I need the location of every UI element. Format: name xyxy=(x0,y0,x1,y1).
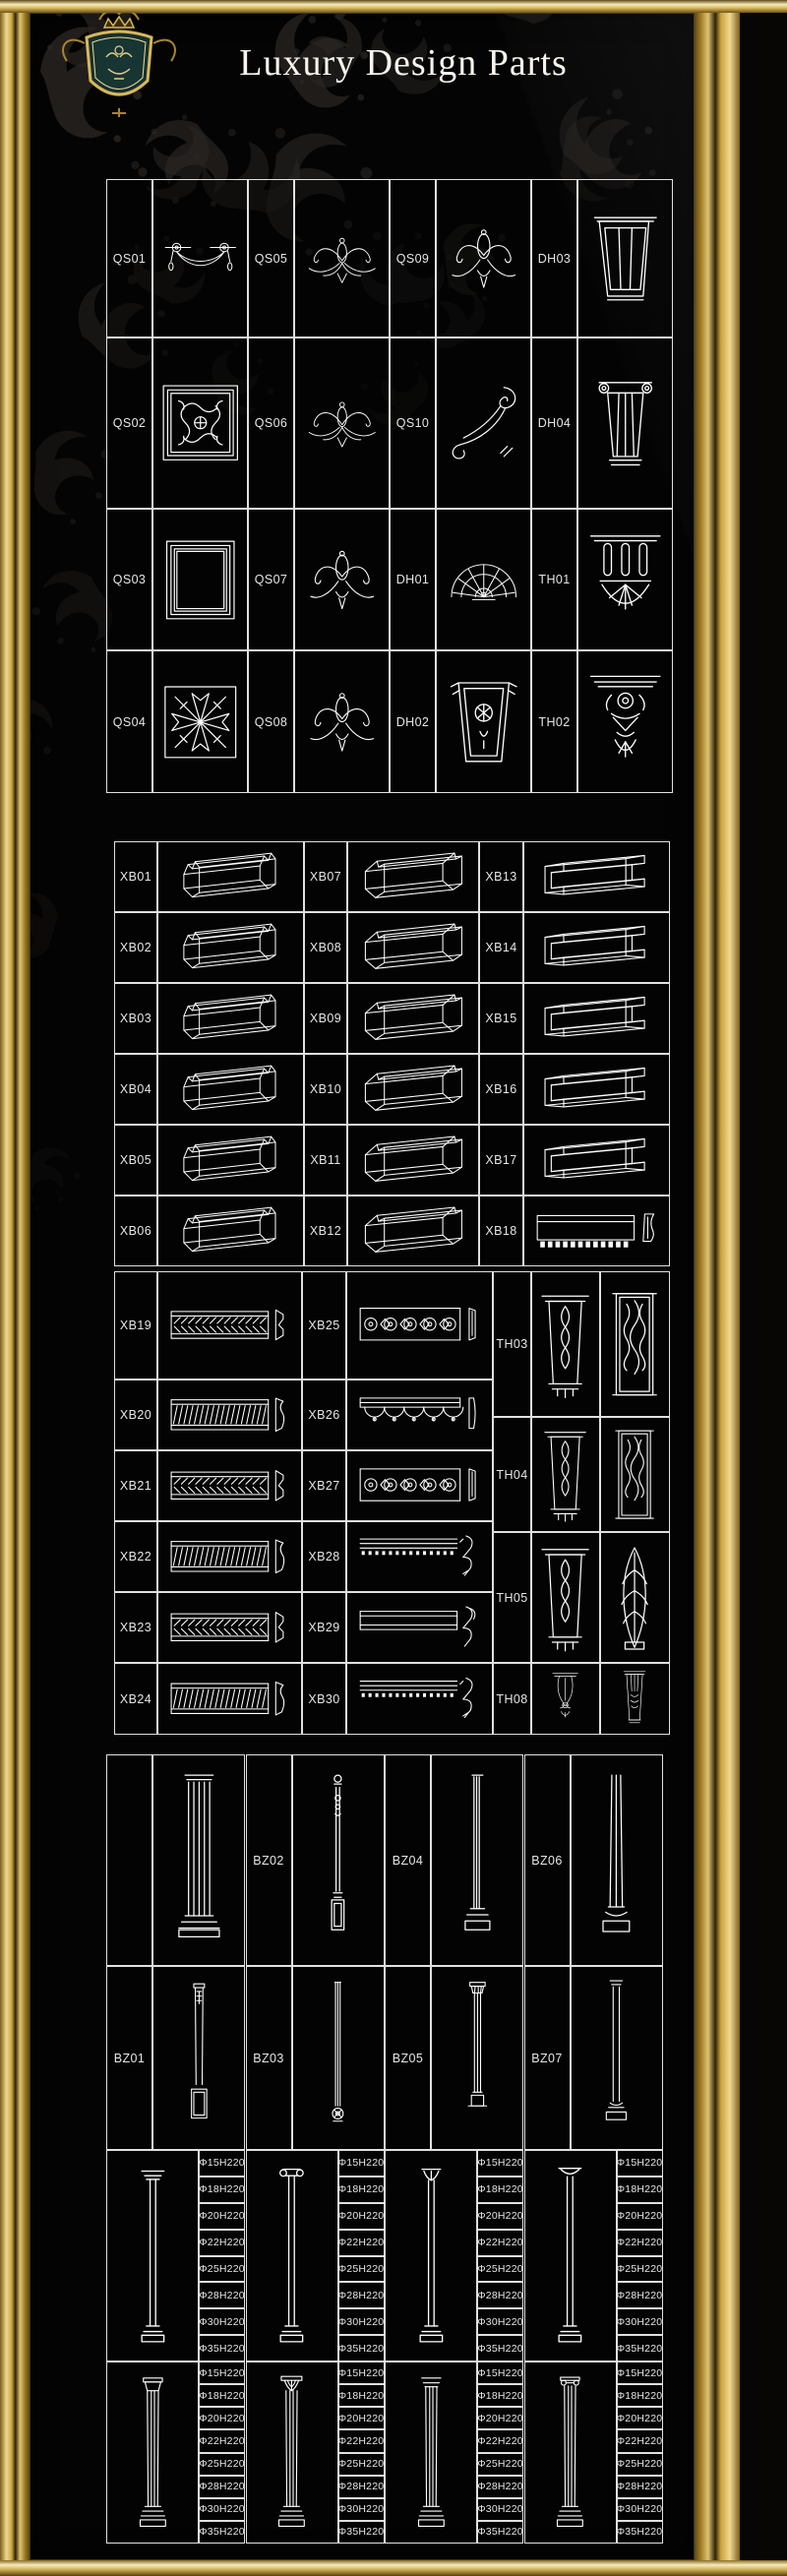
part-code: XB02 xyxy=(120,941,151,954)
flat-hatch-b-icon xyxy=(165,1526,294,1587)
part-code-cell: Φ30H220 xyxy=(617,2498,663,2521)
corbel-ornate-icon xyxy=(583,660,668,784)
flat-hatch-a-icon xyxy=(165,1597,294,1658)
part-drawing-cell xyxy=(436,509,531,650)
part-drawing-cell xyxy=(347,1125,479,1196)
part-drawing-cell xyxy=(600,1417,670,1532)
part-code-cell: Φ15H220 xyxy=(477,2361,523,2384)
keystone-shell-icon xyxy=(442,660,526,784)
part-code: Φ18H220 xyxy=(338,2390,385,2402)
part-drawing-cell xyxy=(106,2150,199,2361)
part-code: Φ20H220 xyxy=(338,2413,385,2424)
molding3d-a-icon xyxy=(165,1130,295,1191)
part-code: Φ25H220 xyxy=(477,2263,523,2275)
part-code-cell: TH04 xyxy=(493,1417,531,1532)
part-drawing-cell xyxy=(294,337,390,509)
part-code: Φ18H220 xyxy=(617,2390,663,2402)
part-code-cell: Φ15H220 xyxy=(617,2361,663,2384)
part-code: BZ06 xyxy=(531,1854,562,1868)
part-code-cell: QS01 xyxy=(106,179,152,337)
molding3d-b-icon xyxy=(355,1200,472,1261)
gold-frame-top xyxy=(0,0,787,13)
part-code: QS09 xyxy=(396,252,430,266)
part-code-cell: QS04 xyxy=(106,650,152,793)
part-code-cell: BZ05 xyxy=(385,1966,431,2150)
part-drawing-cell xyxy=(531,1271,600,1417)
part-code-cell: Φ18H220 xyxy=(199,2384,245,2407)
part-code: XB22 xyxy=(120,1550,151,1564)
part-code-cell: Φ22H220 xyxy=(477,2429,523,2452)
part-drawing-cell xyxy=(431,1966,523,2150)
part-code-cell: XB19 xyxy=(114,1271,157,1380)
part-code: Φ20H220 xyxy=(338,2210,385,2222)
pilaster-bracket-icon xyxy=(535,1425,595,1524)
part-code-cell: TH01 xyxy=(531,509,577,650)
pilaster-bracket-icon xyxy=(535,1541,595,1654)
part-code: XB03 xyxy=(120,1012,151,1025)
part-code-cell: XB04 xyxy=(114,1054,157,1125)
part-code-cell: Φ15H220 xyxy=(338,2150,385,2177)
part-code: QS08 xyxy=(255,715,288,729)
part-code: XB18 xyxy=(485,1224,516,1238)
part-code: Φ22H220 xyxy=(617,2435,663,2447)
part-code: Φ30H220 xyxy=(338,2316,385,2328)
part-code: XB09 xyxy=(310,1012,341,1025)
part-drawing-cell xyxy=(157,1196,304,1266)
part-code: Φ28H220 xyxy=(617,2481,663,2492)
part-code: Φ30H220 xyxy=(617,2316,663,2328)
part-code: Φ28H220 xyxy=(477,2290,523,2301)
part-code-cell: QS02 xyxy=(106,337,152,509)
part-code-cell: Φ20H220 xyxy=(477,2203,523,2230)
part-drawing-cell xyxy=(106,2361,199,2544)
part-code-cell: Φ30H220 xyxy=(199,2308,245,2335)
part-drawing-cell xyxy=(157,1450,302,1521)
flat-hatch-b-icon xyxy=(165,1384,294,1445)
part-code-cell: XB05 xyxy=(114,1125,157,1196)
part-code-cell: Φ22H220 xyxy=(617,2230,663,2256)
part-code: XB19 xyxy=(120,1319,151,1332)
part-drawing-cell xyxy=(246,2150,338,2361)
part-code: XB10 xyxy=(310,1082,341,1096)
part-code: Φ28H220 xyxy=(199,2481,245,2492)
part-code: Φ22H220 xyxy=(477,2237,523,2248)
part-code-cell: Φ25H220 xyxy=(617,2453,663,2476)
part-code: TH01 xyxy=(538,573,570,586)
part-code: Φ35H220 xyxy=(338,2526,385,2538)
flat-hatch-a-icon xyxy=(165,1455,294,1516)
part-code: TH05 xyxy=(496,1591,527,1605)
part-code: Φ28H220 xyxy=(338,2481,385,2492)
part-code-cell: QS06 xyxy=(248,337,294,509)
part-code-cell: Φ18H220 xyxy=(477,2384,523,2407)
part-code-cell: XB22 xyxy=(114,1521,157,1592)
part-drawing-cell xyxy=(347,1196,479,1266)
part-code: XB21 xyxy=(120,1479,151,1493)
part-code-cell: Φ35H220 xyxy=(617,2521,663,2544)
part-code-cell: XB30 xyxy=(302,1663,346,1735)
part-code-cell: XB07 xyxy=(304,841,347,912)
molding3d-b-icon xyxy=(355,988,472,1049)
ornate-swag-icon xyxy=(354,1384,484,1445)
part-code: Φ18H220 xyxy=(477,2183,523,2195)
corbel-trapezoid-icon xyxy=(583,190,668,328)
part-code-cell: XB27 xyxy=(302,1450,346,1521)
part-code-cell: Φ28H220 xyxy=(338,2476,385,2498)
molding3d-b-icon xyxy=(355,846,472,907)
part-code-cell: Φ35H220 xyxy=(477,2335,523,2361)
part-code: Φ30H220 xyxy=(199,2503,245,2515)
part-code: XB11 xyxy=(310,1153,340,1167)
molding3d-c-icon xyxy=(531,988,661,1049)
part-code: QS07 xyxy=(255,573,288,586)
part-code: Φ35H220 xyxy=(477,2526,523,2538)
part-drawing-cell xyxy=(346,1521,493,1592)
part-code: Φ15H220 xyxy=(338,2367,385,2379)
part-code: Φ22H220 xyxy=(477,2435,523,2447)
part-drawing-cell xyxy=(157,1663,302,1735)
part-drawing-cell xyxy=(523,912,670,983)
part-code-cell: QS07 xyxy=(248,509,294,650)
part-code-cell: XB28 xyxy=(302,1521,346,1592)
part-code: Φ15H220 xyxy=(477,2157,523,2169)
part-code: Φ15H220 xyxy=(477,2367,523,2379)
part-code-cell: XB01 xyxy=(114,841,157,912)
right-dark-margin xyxy=(740,13,787,2560)
part-code-cell: BZ06 xyxy=(524,1754,571,1966)
molding3d-c-icon xyxy=(531,1130,661,1191)
flat-hatch-b-icon xyxy=(165,1668,294,1729)
part-code: BZ01 xyxy=(114,2052,145,2065)
part-code-cell: Φ20H220 xyxy=(477,2407,523,2429)
pilaster-small-icon xyxy=(158,1978,240,2138)
part-code: Φ22H220 xyxy=(338,2237,385,2248)
part-code: Φ25H220 xyxy=(338,2458,385,2470)
part-code: BZ05 xyxy=(393,2052,423,2065)
part-code-cell: TH05 xyxy=(493,1532,531,1663)
part-code: Φ18H220 xyxy=(477,2390,523,2402)
part-drawing-cell xyxy=(157,912,304,983)
part-code-cell: Φ15H220 xyxy=(477,2150,523,2177)
part-code-cell: BZ03 xyxy=(246,1966,292,2150)
part-drawing-cell xyxy=(436,650,531,793)
column-tuscan-icon xyxy=(575,1978,657,2138)
ornate-rosette-icon xyxy=(354,1455,484,1516)
part-drawing-cell xyxy=(523,983,670,1054)
part-code-cell: BZ01 xyxy=(106,1966,152,2150)
part-drawing-cell xyxy=(152,1966,245,2150)
part-code-cell: QS03 xyxy=(106,509,152,650)
part-code: Φ20H220 xyxy=(477,2210,523,2222)
part-code-cell: XB06 xyxy=(114,1196,157,1266)
part-code-cell: Φ22H220 xyxy=(617,2429,663,2452)
gold-frame-bottom xyxy=(0,2560,787,2576)
part-code: XB15 xyxy=(485,1012,516,1025)
part-drawing-cell xyxy=(436,337,531,509)
part-code-cell: Φ25H220 xyxy=(338,2453,385,2476)
part-code: Φ15H220 xyxy=(199,2157,245,2169)
part-drawing-cell xyxy=(523,1196,670,1266)
part-code-cell: XB18 xyxy=(479,1196,523,1266)
part-code-cell: Φ20H220 xyxy=(617,2203,663,2230)
part-code-cell: Φ30H220 xyxy=(477,2308,523,2335)
part-code-cell: Φ30H220 xyxy=(617,2308,663,2335)
part-drawing-cell xyxy=(246,2361,338,2544)
molding3d-a-icon xyxy=(165,1059,295,1120)
part-code-cell: Φ15H220 xyxy=(617,2150,663,2177)
part-drawing-cell xyxy=(152,179,248,337)
part-code: XB08 xyxy=(310,941,341,954)
part-code-cell: Φ20H220 xyxy=(338,2203,385,2230)
molding3d-a-icon xyxy=(165,917,295,978)
part-drawing-cell xyxy=(157,1125,304,1196)
part-code-cell: XB03 xyxy=(114,983,157,1054)
part-drawing-cell xyxy=(571,1754,663,1966)
part-code: Φ15H220 xyxy=(338,2157,385,2169)
part-drawing-cell xyxy=(600,1532,670,1663)
part-code: QS01 xyxy=(113,252,147,266)
part-drawing-cell xyxy=(292,1754,385,1966)
part-code-cell: QS05 xyxy=(248,179,294,337)
part-code: QS03 xyxy=(113,573,147,586)
part-code-cell: Φ20H220 xyxy=(199,2407,245,2429)
part-code: Φ18H220 xyxy=(617,2183,663,2195)
part-code-cell: Φ25H220 xyxy=(338,2256,385,2283)
part-code: XB12 xyxy=(310,1224,341,1238)
part-drawing-cell xyxy=(347,912,479,983)
part-code: Φ18H220 xyxy=(199,2183,245,2195)
part-code: XB13 xyxy=(485,870,516,884)
part-drawing-cell xyxy=(292,1966,385,2150)
corner-scroll-icon xyxy=(442,348,526,497)
part-code-cell: Φ18H220 xyxy=(617,2384,663,2407)
part-code-cell: DH01 xyxy=(390,509,436,650)
part-drawing-cell xyxy=(157,1380,302,1450)
fan-shell-icon xyxy=(442,519,526,642)
molding3d-a-icon xyxy=(165,1200,295,1261)
part-code: Φ35H220 xyxy=(199,2526,245,2538)
part-drawing-cell xyxy=(531,1417,600,1532)
part-code: TH02 xyxy=(538,715,570,729)
part-code: Φ20H220 xyxy=(617,2210,663,2222)
part-drawing-cell xyxy=(152,1754,245,1966)
part-code: Φ22H220 xyxy=(199,2237,245,2248)
part-code: QS10 xyxy=(396,416,430,430)
part-code: Φ25H220 xyxy=(617,2458,663,2470)
colfull-doric-icon xyxy=(112,2373,194,2532)
part-drawing-cell xyxy=(385,2361,477,2544)
part-code: TH08 xyxy=(496,1692,527,1706)
part-drawing-cell xyxy=(157,983,304,1054)
part-drawing-cell xyxy=(346,1663,493,1735)
part-code: Φ15H220 xyxy=(617,2367,663,2379)
part-code-cell: TH08 xyxy=(493,1663,531,1735)
pilaster-bracket-icon xyxy=(535,1281,595,1407)
part-code-cell: TH02 xyxy=(531,650,577,793)
part-code-cell: Φ22H220 xyxy=(338,2230,385,2256)
part-drawing-cell xyxy=(347,983,479,1054)
part-code: DH01 xyxy=(396,573,430,586)
part-code: XB29 xyxy=(308,1621,339,1634)
part-code: Φ25H220 xyxy=(338,2263,385,2275)
colsm-leaf-icon xyxy=(391,2164,472,2348)
part-code: QS05 xyxy=(255,252,288,266)
part-code: XB25 xyxy=(308,1319,339,1332)
molding3d-c-icon xyxy=(531,1059,661,1120)
part-code: BZ03 xyxy=(253,2052,283,2065)
part-code-cell: Φ18H220 xyxy=(199,2177,245,2203)
part-code: Φ25H220 xyxy=(477,2458,523,2470)
part-code: Φ35H220 xyxy=(477,2343,523,2355)
part-code: XB17 xyxy=(485,1153,516,1167)
part-code-cell: XB02 xyxy=(114,912,157,983)
part-code-cell: BZ02 xyxy=(246,1754,292,1966)
molding3d-b-icon xyxy=(355,1130,472,1191)
part-drawing-cell xyxy=(577,337,673,509)
ornate-rosette-icon xyxy=(354,1278,484,1372)
part-code-cell xyxy=(106,1754,152,1966)
part-drawing-cell xyxy=(152,650,248,793)
part-code-cell: DH02 xyxy=(390,650,436,793)
part-code-cell: Φ28H220 xyxy=(617,2282,663,2308)
part-code: BZ04 xyxy=(393,1854,423,1868)
part-code-cell: XB09 xyxy=(304,983,347,1054)
part-code-cell: XB14 xyxy=(479,912,523,983)
part-code: Φ20H220 xyxy=(199,2413,245,2424)
part-code: Φ35H220 xyxy=(338,2343,385,2355)
part-drawing-cell xyxy=(385,2150,477,2361)
part-code-cell: QS08 xyxy=(248,650,294,793)
part-code-cell: Φ18H220 xyxy=(338,2384,385,2407)
molding3d-a-icon xyxy=(165,846,295,907)
part-code: XB05 xyxy=(120,1153,151,1167)
colfull-fluted-icon xyxy=(529,2373,611,2532)
part-code-cell: Φ15H220 xyxy=(199,2150,245,2177)
pilaster-panel-icon xyxy=(604,1425,665,1524)
pendant-bracket-icon xyxy=(583,519,668,642)
part-code-cell: Φ22H220 xyxy=(338,2429,385,2452)
crest-wide-icon xyxy=(300,348,385,497)
part-drawing-cell xyxy=(600,1271,670,1417)
column-capital-small-icon xyxy=(437,1978,518,2138)
part-drawing-cell xyxy=(157,1271,302,1380)
part-code: XB07 xyxy=(310,870,341,884)
part-code: XB26 xyxy=(308,1408,339,1422)
part-code: Φ35H220 xyxy=(199,2343,245,2355)
part-code: Φ30H220 xyxy=(199,2316,245,2328)
pilaster-panel-icon xyxy=(604,1281,665,1407)
part-code-cell: XB23 xyxy=(114,1592,157,1663)
part-code-cell: Φ25H220 xyxy=(199,2256,245,2283)
part-code: Φ20H220 xyxy=(477,2413,523,2424)
part-code: Φ30H220 xyxy=(477,2316,523,2328)
part-drawing-cell xyxy=(346,1380,493,1450)
part-code-cell: Φ22H220 xyxy=(199,2429,245,2452)
swag-icon xyxy=(158,190,243,328)
part-code-cell: BZ07 xyxy=(524,1966,571,2150)
part-code-cell: XB15 xyxy=(479,983,523,1054)
part-drawing-cell xyxy=(346,1450,493,1521)
part-code-cell: Φ20H220 xyxy=(338,2407,385,2429)
part-code: Φ15H220 xyxy=(617,2157,663,2169)
corbel-scroll-icon xyxy=(535,1668,595,1729)
part-code-cell: XB29 xyxy=(302,1592,346,1663)
part-drawing-cell xyxy=(571,1966,663,2150)
part-code-cell: Φ35H220 xyxy=(199,2335,245,2361)
part-code-cell: Φ30H220 xyxy=(477,2498,523,2521)
part-code-cell: Φ25H220 xyxy=(617,2256,663,2283)
part-code: BZ07 xyxy=(531,2052,562,2065)
part-code: Φ30H220 xyxy=(477,2503,523,2515)
part-code: Φ25H220 xyxy=(199,2458,245,2470)
part-code: DH02 xyxy=(396,715,430,729)
part-code: Φ22H220 xyxy=(199,2435,245,2447)
part-drawing-cell xyxy=(436,179,531,337)
part-code: XB24 xyxy=(120,1692,151,1706)
part-code-cell: Φ28H220 xyxy=(199,2282,245,2308)
part-code: Φ28H220 xyxy=(199,2290,245,2301)
part-drawing-cell xyxy=(294,650,390,793)
part-code: XB01 xyxy=(120,870,151,884)
part-drawing-cell xyxy=(531,1532,600,1663)
part-code: DH04 xyxy=(538,416,572,430)
part-code-cell: XB13 xyxy=(479,841,523,912)
colsm-doric-icon xyxy=(112,2164,194,2348)
part-drawing-cell xyxy=(346,1271,493,1380)
part-code-cell: Φ28H220 xyxy=(477,2476,523,2498)
molding3d-b-icon xyxy=(355,1059,472,1120)
colfull-corinthian-icon xyxy=(251,2373,333,2532)
part-drawing-cell xyxy=(157,1592,302,1663)
part-code-cell: Φ18H220 xyxy=(477,2177,523,2203)
corbel-vase-icon xyxy=(604,1668,665,1729)
crest-compact-icon xyxy=(300,519,385,642)
part-code: Φ20H220 xyxy=(617,2413,663,2424)
part-code-cell: BZ04 xyxy=(385,1754,431,1966)
gold-frame-left xyxy=(0,13,30,2560)
part-code: TH04 xyxy=(496,1468,527,1482)
part-code-cell: Φ20H220 xyxy=(199,2203,245,2230)
part-code: Φ18H220 xyxy=(338,2183,385,2195)
part-code-cell: Φ35H220 xyxy=(617,2335,663,2361)
part-code-cell: XB20 xyxy=(114,1380,157,1450)
part-code: QS04 xyxy=(113,715,147,729)
part-code-cell: Φ25H220 xyxy=(199,2453,245,2476)
baluster-slim-icon xyxy=(297,1768,379,1952)
part-drawing-cell xyxy=(152,509,248,650)
part-code-cell: Φ28H220 xyxy=(617,2476,663,2498)
part-code-cell: Φ22H220 xyxy=(477,2230,523,2256)
part-code-cell: DH03 xyxy=(531,179,577,337)
part-code: Φ35H220 xyxy=(617,2526,663,2538)
part-drawing-cell xyxy=(577,179,673,337)
part-code: Φ30H220 xyxy=(338,2503,385,2515)
part-code-cell: XB26 xyxy=(302,1380,346,1450)
part-code: XB27 xyxy=(308,1479,339,1493)
poster-canvas: Luxury Design Parts QS01QS05QS09DH03QS02… xyxy=(0,0,787,2576)
part-code-cell: Φ28H220 xyxy=(477,2282,523,2308)
colsm-scroll-icon xyxy=(251,2164,333,2348)
part-code-cell: XB10 xyxy=(304,1054,347,1125)
crown-profile-a-icon xyxy=(354,1668,484,1729)
crest-wide-icon xyxy=(300,190,385,328)
part-code: Φ22H220 xyxy=(617,2237,663,2248)
part-code: XB14 xyxy=(485,941,516,954)
flat-dentil-icon xyxy=(531,1200,661,1261)
gold-frame-right xyxy=(695,13,740,2560)
part-code: XB20 xyxy=(120,1408,151,1422)
column-slim-fluted-icon xyxy=(437,1768,518,1952)
